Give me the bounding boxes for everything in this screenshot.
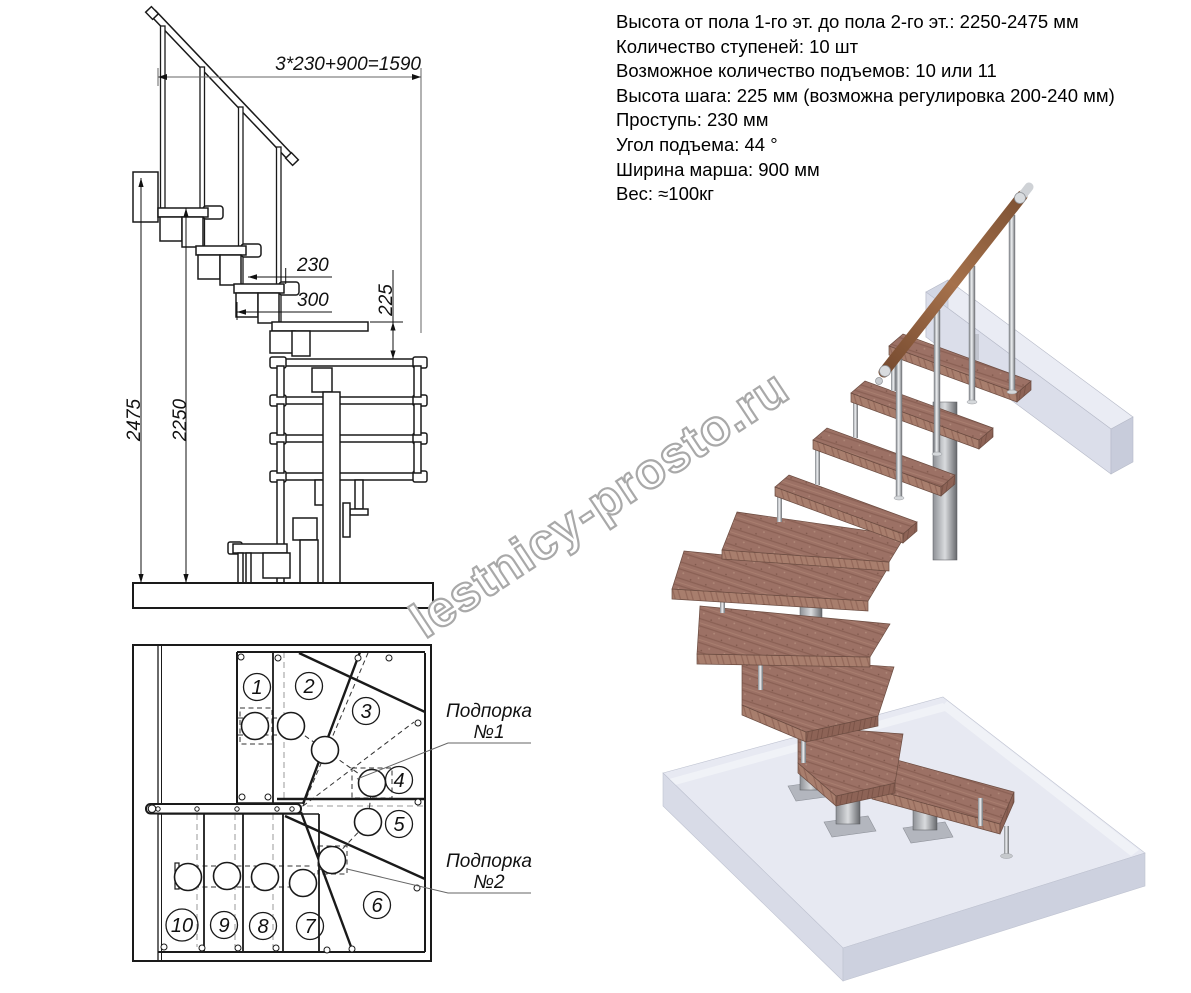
dim-height-min-label: 2250 <box>170 398 191 442</box>
support-callout-1: Подпорка №1 <box>357 701 532 779</box>
step-number: 9 <box>211 912 238 939</box>
elevation-steps <box>158 206 368 356</box>
support2-number: №2 <box>473 872 505 893</box>
wall-bracket <box>133 172 158 222</box>
step-number: 6 <box>364 892 391 919</box>
svg-text:5: 5 <box>393 814 405 836</box>
spec-line: Высота от пола 1-го эт. до пола 2-го эт.… <box>616 10 1181 35</box>
plan-step-edges <box>158 652 425 952</box>
spec-line: Проступь: 230 мм <box>616 108 1181 133</box>
svg-text:6: 6 <box>371 895 383 917</box>
step-number: 3 <box>353 698 380 725</box>
elevation-first-step <box>228 542 290 583</box>
step-number: 8 <box>250 913 277 940</box>
render-3d <box>640 140 1191 990</box>
svg-text:8: 8 <box>257 916 268 938</box>
svg-text:2: 2 <box>302 676 314 698</box>
support1-label: Подпорка <box>446 701 532 722</box>
spec-line: Возможное количество подъемов: 10 или 11 <box>616 59 1181 84</box>
elevation-floor <box>133 583 433 608</box>
spec-line: Количество ступеней: 10 шт <box>616 35 1181 60</box>
svg-text:9: 9 <box>218 915 229 937</box>
svg-text:4: 4 <box>393 770 404 792</box>
dim-module-label: 300 <box>297 290 329 311</box>
step-number: 1 <box>244 674 271 701</box>
spec-line: Высота шага: 225 мм (возможна регулировк… <box>616 84 1181 109</box>
dim-height-max <box>138 178 143 583</box>
svg-text:1: 1 <box>251 677 262 699</box>
step-number: 10 <box>166 909 198 941</box>
dim-total-run-label: 3*230+900=1590 <box>275 54 421 75</box>
svg-text:7: 7 <box>304 916 316 938</box>
elevation-winder-bands <box>270 357 427 583</box>
dim-rise-label: 225 <box>376 284 397 317</box>
dim-tread-label: 230 <box>296 255 329 276</box>
dim-height-min <box>183 208 188 583</box>
step-number: 2 <box>296 673 323 700</box>
svg-text:10: 10 <box>171 915 193 937</box>
dim-height-max-label: 2475 <box>124 398 145 442</box>
floor-platform <box>663 697 1145 981</box>
support2-label: Подпорка <box>446 851 532 872</box>
step-number: 5 <box>386 811 413 838</box>
elevation-drawing: 3*230+900=1590 230 300 225 <box>115 0 445 620</box>
step-number: 4 <box>386 767 413 794</box>
svg-text:3: 3 <box>360 701 371 723</box>
plan-drawing: 1 2 3 4 5 6 7 8 9 10 Подпорка №1 Подпорк… <box>100 630 560 990</box>
plan-handrail <box>146 804 301 814</box>
support1-number: №1 <box>473 722 504 743</box>
elevation-handrail <box>146 7 299 166</box>
drawing-canvas: Высота от пола 1-го эт. до пола 2-го эт.… <box>0 0 1191 993</box>
